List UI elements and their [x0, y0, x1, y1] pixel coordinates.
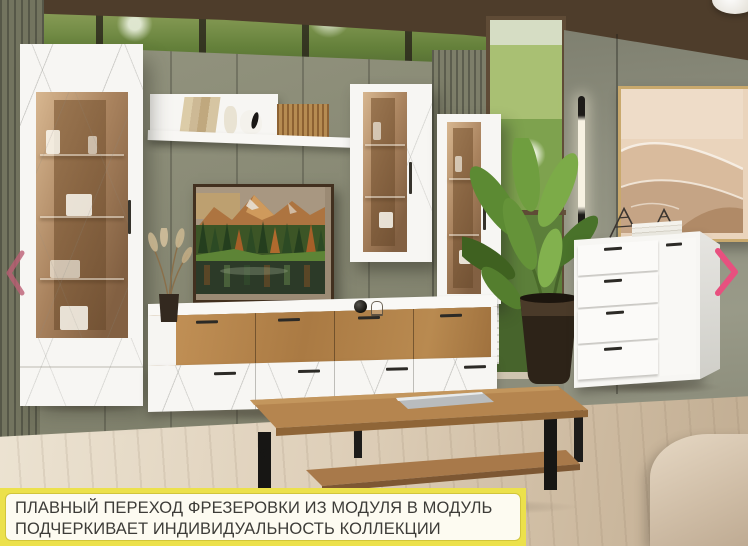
caption-line-2: ПОДЧЕРКИВАЕТ ИНДИВИДУАЛЬНОСТЬ КОЛЛЕКЦИИ [15, 519, 511, 540]
shelf-vase [224, 106, 237, 134]
drawer-handle [298, 369, 320, 373]
drawer [578, 272, 658, 308]
alarm-clock [354, 300, 367, 313]
caption-panel: ПЛАВНЫЙ ПЕРЕХОД ФРЕЗЕРОВКИ ИЗ МОДУЛЯ В М… [5, 493, 521, 541]
decor-box [379, 212, 393, 228]
landscape-picture [193, 184, 334, 303]
glass-shelf [365, 144, 405, 146]
milled-base [20, 338, 143, 406]
door-handle [409, 162, 412, 194]
door-seam [255, 313, 256, 363]
decor-bottle [373, 122, 381, 140]
drawer-handle [196, 320, 218, 324]
wall-cabinet-left [350, 84, 432, 262]
glass-door [36, 92, 128, 338]
pampas-grass [146, 228, 192, 324]
tall-display-cabinet [20, 44, 143, 406]
drawer-handle [440, 314, 462, 318]
decor-bottle [455, 156, 462, 172]
door-seam [413, 309, 414, 359]
drawer-handle [386, 367, 408, 371]
caption-banner: ПЛАВНЫЙ ПЕРЕХОД ФРЕЗЕРОВКИ ИЗ МОДУЛЯ В М… [0, 488, 526, 546]
glass-door [363, 92, 407, 252]
door-seam [334, 311, 335, 361]
door-handle [128, 200, 131, 234]
drawer-handle [214, 372, 236, 376]
sofa-corner [650, 434, 748, 546]
drawer-handle [278, 318, 300, 322]
chevron-left-icon[interactable] [2, 248, 30, 298]
shelf-books [179, 97, 220, 133]
glass-shelf [365, 196, 405, 198]
drawer-handle [358, 316, 380, 320]
pampas-vase [146, 228, 192, 324]
milled-glass-lines [36, 92, 128, 338]
chest-of-drawers [574, 230, 720, 388]
product-carousel-slide: ПЛАВНЫЙ ПЕРЕХОД ФРЕЗЕРОВКИ ИЗ МОДУЛЯ В М… [0, 0, 748, 546]
chest-door [660, 237, 696, 376]
caption-line-1: ПЛАВНЫЙ ПЕРЕХОД ФРЕЗЕРОВКИ ИЗ МОДУЛЯ В М… [15, 498, 511, 519]
drawer [578, 240, 658, 276]
glass-cloche [371, 301, 383, 316]
landscape-art [196, 187, 325, 294]
chevron-right-icon[interactable] [710, 246, 742, 298]
